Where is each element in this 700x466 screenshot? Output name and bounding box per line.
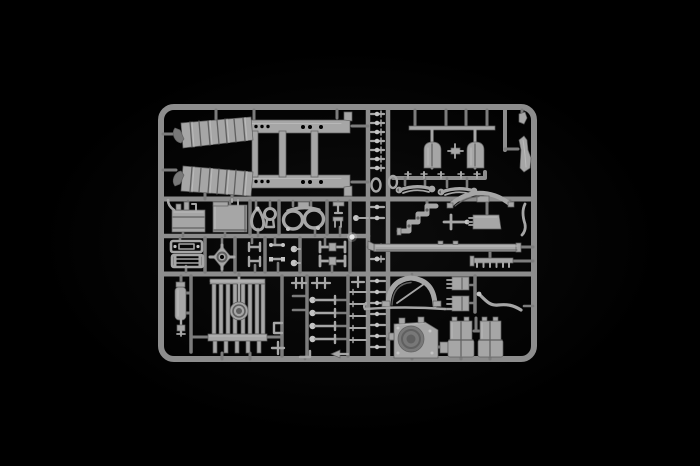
part-pin-column (371, 111, 384, 262)
part-cylinder-tank (175, 282, 186, 336)
part-tee-rod (444, 215, 473, 229)
part-seat-left (448, 317, 474, 357)
part-exhaust-stack (519, 112, 531, 172)
part-running-board (368, 241, 521, 252)
sprue-photo-svg (0, 0, 700, 466)
part-slender-strip (522, 204, 525, 235)
part-bulb-ring (265, 209, 276, 228)
part-side-plate (469, 215, 501, 229)
part-cube-fitting (440, 342, 448, 353)
part-tank-rack (409, 126, 495, 168)
part-gearbox (389, 317, 438, 358)
part-twin-oval-frame (284, 202, 324, 231)
part-clip-set (249, 243, 300, 266)
part-axle-yokes (320, 242, 345, 266)
part-ladder-chassis (246, 112, 352, 196)
part-fender-upper (173, 117, 253, 148)
part-hub-cross (210, 245, 234, 269)
part-seat-right (478, 317, 503, 357)
part-radiator (208, 278, 267, 353)
part-connector-blocks (447, 277, 469, 311)
part-teardrop-ring (252, 207, 264, 231)
part-hose (477, 292, 521, 310)
part-arched-bracket (447, 193, 514, 208)
part-engine-block (168, 200, 205, 232)
specular-highlight (347, 232, 357, 242)
part-wheel-arch (382, 278, 441, 307)
part-fender-lower (173, 166, 253, 196)
part-ladder-frames-small (171, 241, 203, 267)
part-elbow-pipe (397, 206, 436, 235)
product-photo (0, 0, 700, 466)
